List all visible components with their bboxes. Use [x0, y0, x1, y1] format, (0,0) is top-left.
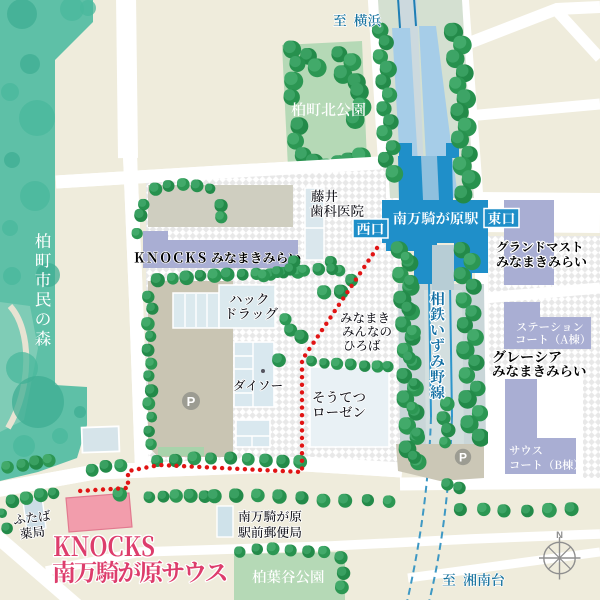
svg-text:N: N: [556, 530, 563, 541]
svg-text:P: P: [459, 451, 467, 465]
svg-text:P: P: [187, 394, 196, 409]
